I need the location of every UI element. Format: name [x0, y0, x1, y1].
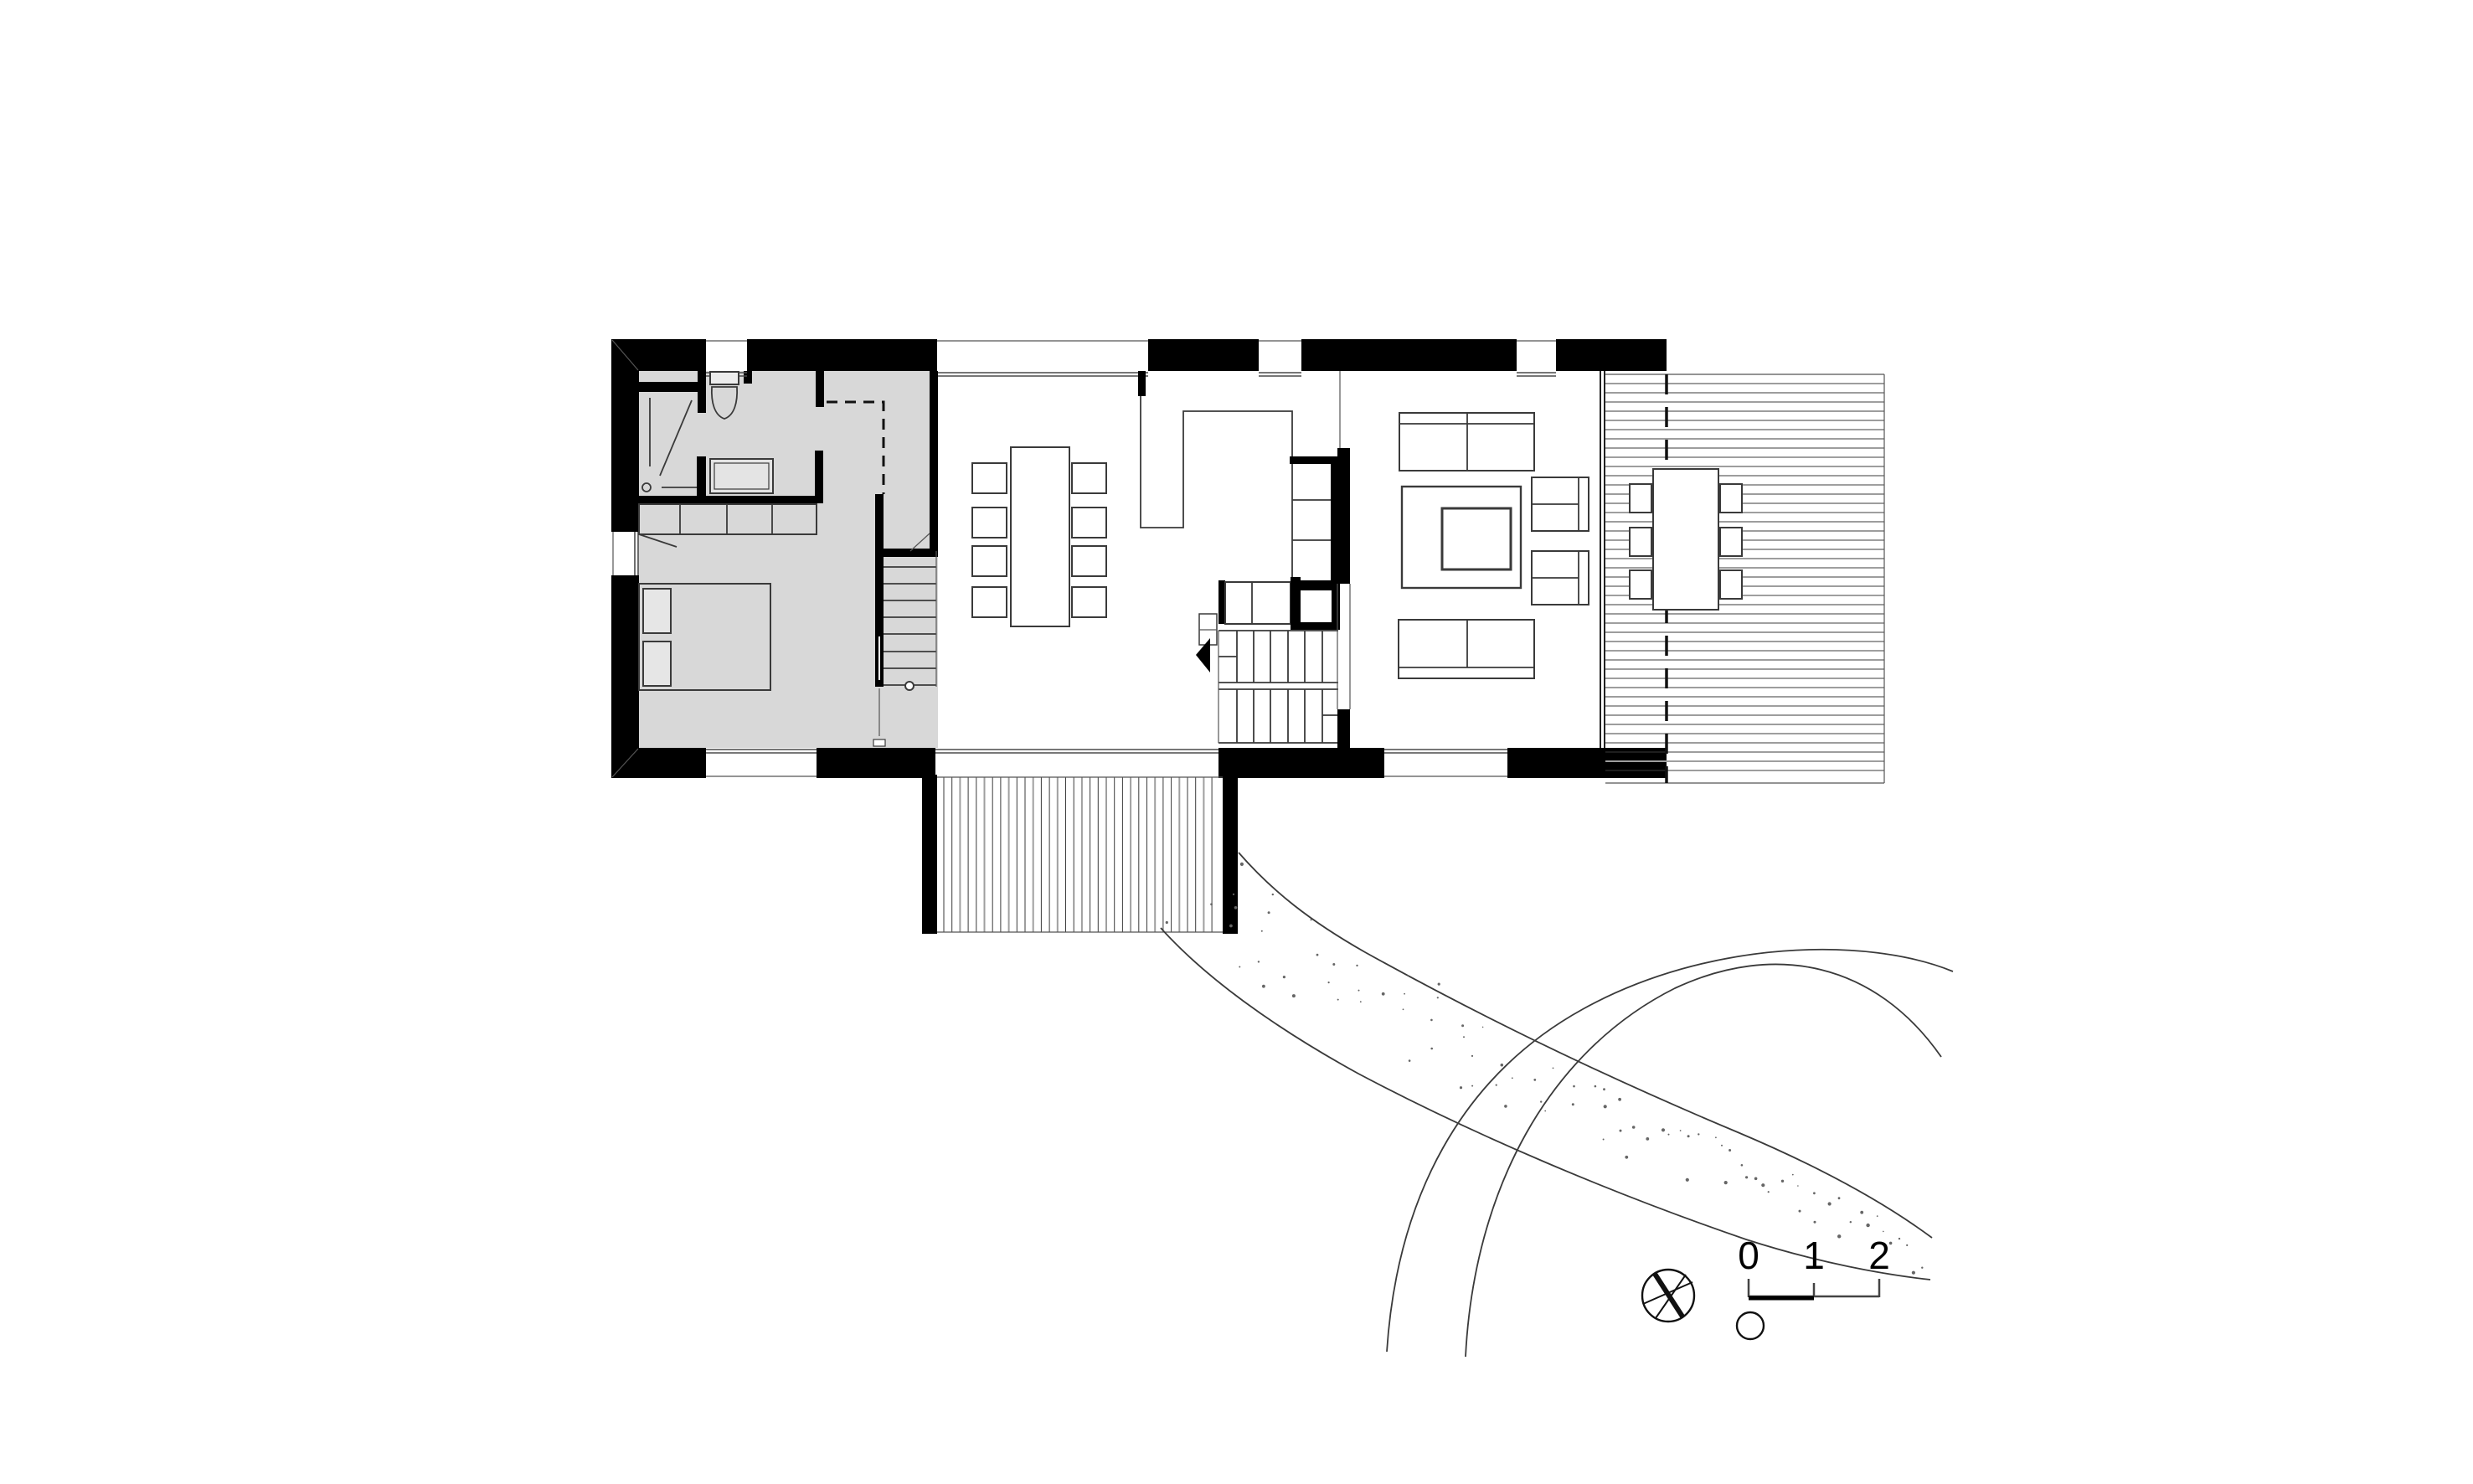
dining-chair: [1072, 587, 1106, 617]
tree-marked-icon: [1642, 1270, 1694, 1322]
kitchen: [1138, 371, 1340, 630]
outdoor-chair: [1720, 528, 1742, 556]
pillow: [643, 642, 671, 686]
stair-down-upper-flight: [1218, 631, 1322, 683]
entry-door-frame: [873, 739, 885, 746]
gravel-dots: [1166, 863, 1924, 1275]
kitchen-east-units: [1290, 456, 1338, 585]
kitchen-wall-stub: [1138, 371, 1146, 396]
dining-room: [972, 447, 1106, 626]
window-north-dining: [937, 341, 1148, 376]
dining-chair: [972, 587, 1007, 617]
sofa-south: [1399, 620, 1534, 678]
porch-wing-wall-east: [1223, 775, 1238, 934]
garden-path: [1161, 853, 1932, 1280]
east-deck: [1605, 374, 1884, 783]
dining-chair: [972, 508, 1007, 538]
scale-label-2: 2: [1868, 1234, 1890, 1277]
stair-newel-post: [905, 682, 914, 690]
outdoor-chair: [1720, 484, 1742, 513]
kitchen-counter: [1141, 396, 1292, 580]
floor-plan-drawing: 0 1 2: [0, 0, 2473, 1484]
window-north-kitchen: [1259, 341, 1301, 376]
outdoor-table: [1653, 469, 1718, 610]
outdoor-chair: [1630, 570, 1651, 599]
vanity-counter: [710, 459, 773, 493]
floor-plan-page: 0 1 2: [0, 0, 2473, 1484]
porch-wing-wall-west: [922, 775, 937, 934]
living-partition-wall: [1337, 371, 1350, 748]
partition-shower-niche: [639, 382, 698, 392]
window-south-bedroom: [706, 750, 817, 776]
hall-east-wall: [930, 371, 938, 551]
partition-bath-east-lower: [815, 451, 823, 503]
outdoor-chair: [1630, 528, 1651, 556]
armchair: [1532, 477, 1589, 531]
dining-chair: [1072, 546, 1106, 576]
window-west-bedroom: [613, 532, 638, 575]
window-north-living: [1517, 341, 1556, 376]
window-south-living: [1384, 750, 1507, 776]
porch-planks: [944, 777, 1212, 932]
sofa-north: [1399, 413, 1534, 471]
scale-label-1: 1: [1803, 1234, 1825, 1277]
pillow: [643, 589, 671, 633]
window-north-bath: [706, 341, 747, 376]
entry-door-glazing: [935, 750, 1218, 753]
dining-chair: [1072, 508, 1106, 538]
dining-chair: [972, 546, 1007, 576]
armchair: [1532, 551, 1589, 605]
entry-porch: [922, 775, 1238, 934]
basement-stairs: [1196, 614, 1338, 743]
partition-bedroom-north: [639, 496, 817, 504]
dining-table: [1011, 447, 1069, 626]
bed: [639, 584, 770, 690]
appliance: [1301, 590, 1332, 622]
dining-chair: [1072, 463, 1106, 493]
shrub-icon: [1737, 1312, 1764, 1339]
bedroom-suite-floor: [639, 371, 938, 748]
partition-wc-left: [698, 371, 706, 413]
dining-chair: [972, 463, 1007, 493]
east-glass-wall: [1600, 371, 1605, 748]
outdoor-chair: [1630, 484, 1651, 513]
kitchen-south-units: [1218, 580, 1340, 630]
outdoor-chair: [1720, 570, 1742, 599]
scale-label-0: 0: [1738, 1234, 1759, 1277]
stair-down-lower-flight: [1218, 689, 1338, 743]
partition-bath-east-upper: [816, 371, 824, 407]
rug-coffee-table: [1402, 487, 1521, 588]
living-room: [1399, 371, 1605, 748]
